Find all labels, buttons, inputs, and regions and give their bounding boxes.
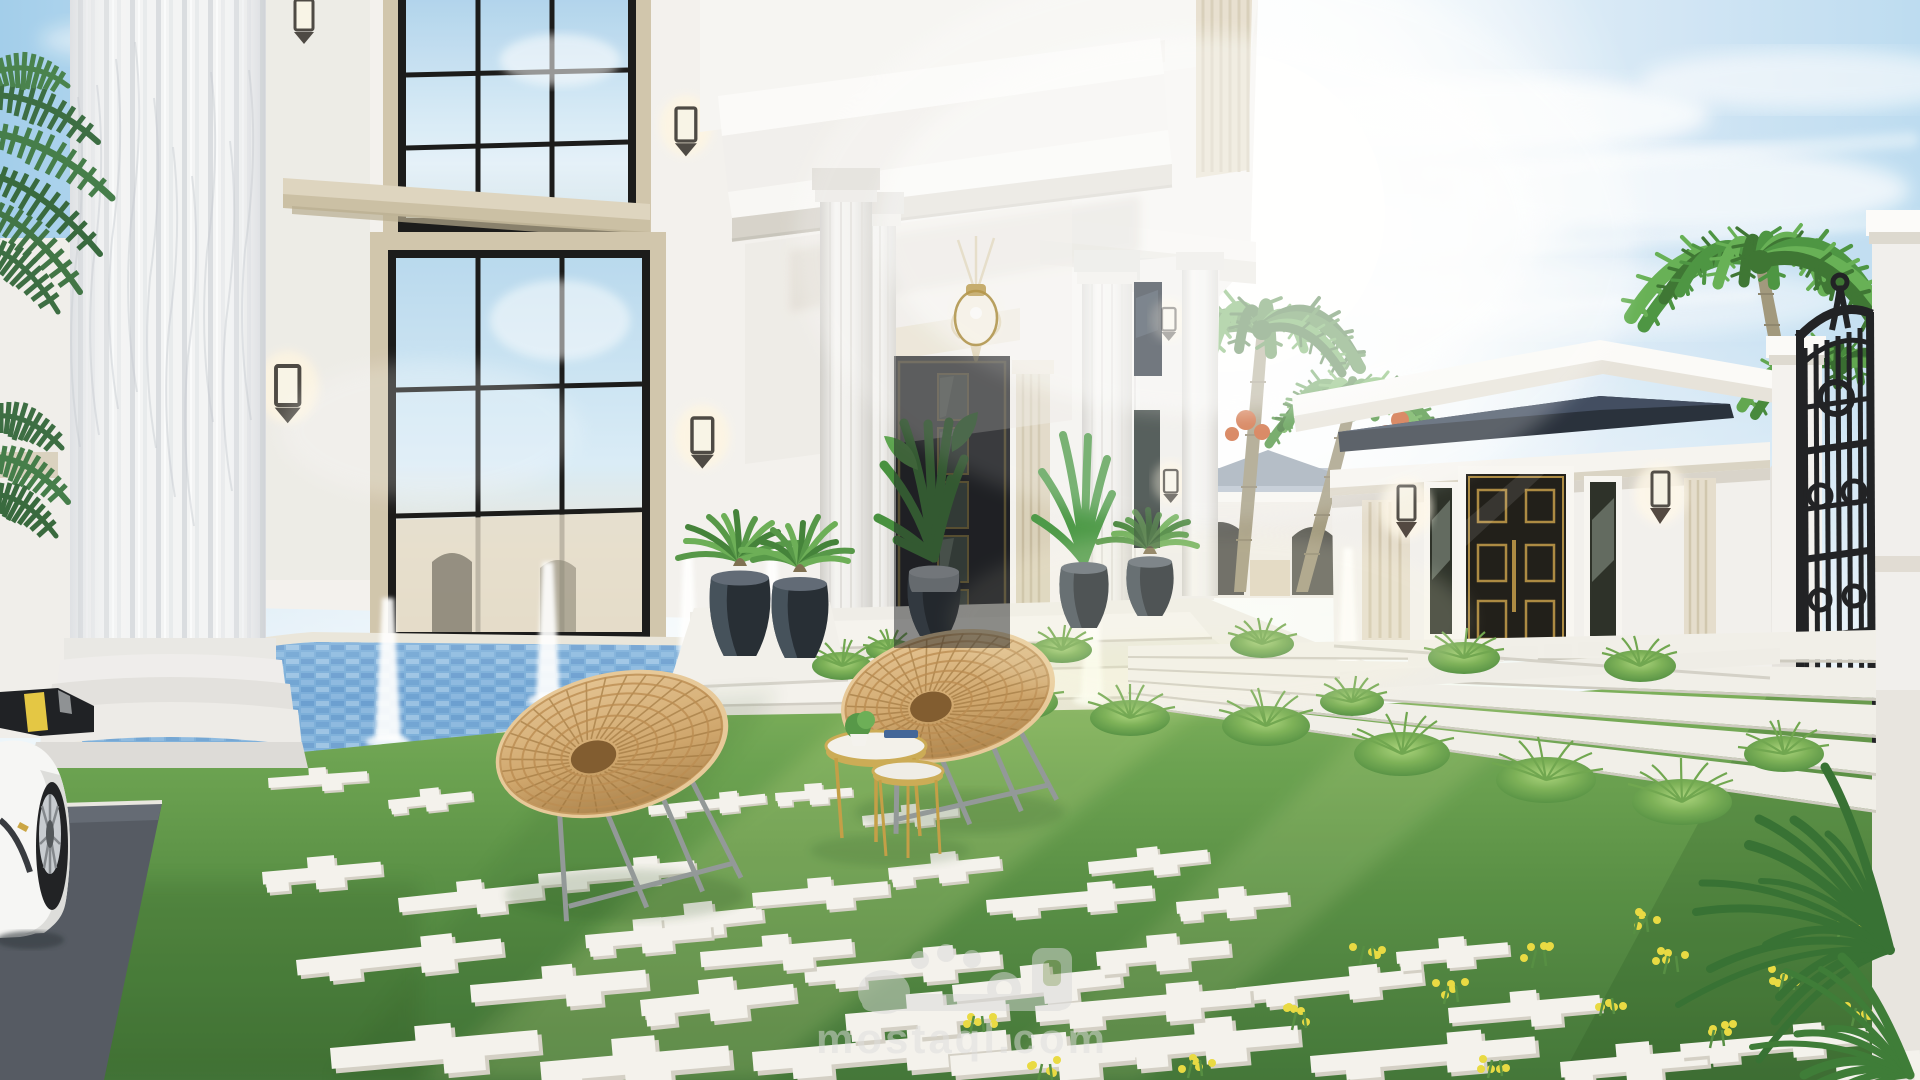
svg-text:mostaql.com: mostaql.com <box>816 1015 1108 1062</box>
